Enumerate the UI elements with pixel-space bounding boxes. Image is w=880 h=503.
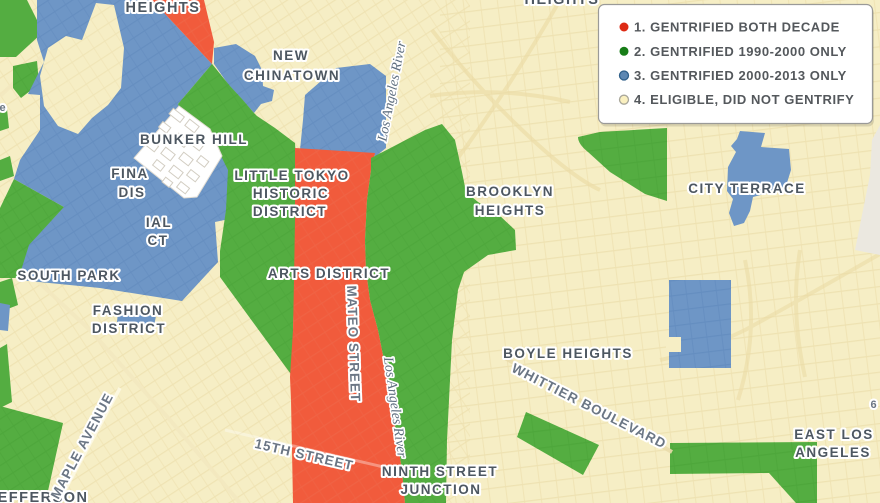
svg-text:3. GENTRIFIED 2000-2013 ONLY: 3. GENTRIFIED 2000-2013 ONLY (634, 68, 847, 83)
svg-text:BOYLE HEIGHTS: BOYLE HEIGHTS (503, 346, 633, 361)
svg-text:JUNCTION: JUNCTION (400, 482, 481, 497)
svg-text:DISTRICT: DISTRICT (253, 204, 327, 219)
svg-text:1. GENTRIFIED BOTH DECADE: 1. GENTRIFIED BOTH DECADE (634, 20, 840, 35)
svg-text:ARTS DISTRICT: ARTS DISTRICT (268, 266, 390, 281)
svg-text:NINTH STREET: NINTH STREET (382, 464, 498, 479)
svg-text:e: e (0, 102, 7, 114)
svg-text:CHINATOWN: CHINATOWN (244, 68, 340, 83)
svg-text:JEFFERSON: JEFFERSON (0, 490, 89, 503)
svg-text:BROOKLYN: BROOKLYN (466, 184, 554, 199)
svg-text:DIS: DIS (118, 185, 145, 200)
svg-text:6: 6 (870, 399, 877, 411)
svg-text:NEW: NEW (273, 48, 309, 63)
svg-text:CT: CT (148, 233, 169, 248)
svg-text:HEIGHTS: HEIGHTS (525, 0, 600, 8)
svg-text:LITTLE TOKYO: LITTLE TOKYO (234, 168, 349, 183)
svg-text:CITY TERRACE: CITY TERRACE (688, 181, 806, 196)
svg-text:FASHION: FASHION (93, 303, 164, 318)
svg-text:DISTRICT: DISTRICT (92, 321, 166, 336)
svg-text:FINA: FINA (111, 166, 149, 181)
svg-text:BUNKER HILL: BUNKER HILL (140, 132, 248, 147)
svg-text:IAL: IAL (146, 215, 172, 230)
svg-text:HEIGHTS: HEIGHTS (126, 0, 201, 16)
svg-text:EAST LOS: EAST LOS (794, 427, 874, 442)
svg-text:HISTORIC: HISTORIC (253, 186, 329, 201)
svg-text:4. ELIGIBLE, DID NOT GENTRIFY: 4. ELIGIBLE, DID NOT GENTRIFY (634, 92, 854, 107)
svg-text:ANGELES: ANGELES (795, 445, 871, 460)
svg-text:2. GENTRIFIED 1990-2000 ONLY: 2. GENTRIFIED 1990-2000 ONLY (634, 44, 847, 59)
svg-text:SOUTH PARK: SOUTH PARK (17, 268, 120, 283)
svg-text:HEIGHTS: HEIGHTS (475, 203, 546, 218)
